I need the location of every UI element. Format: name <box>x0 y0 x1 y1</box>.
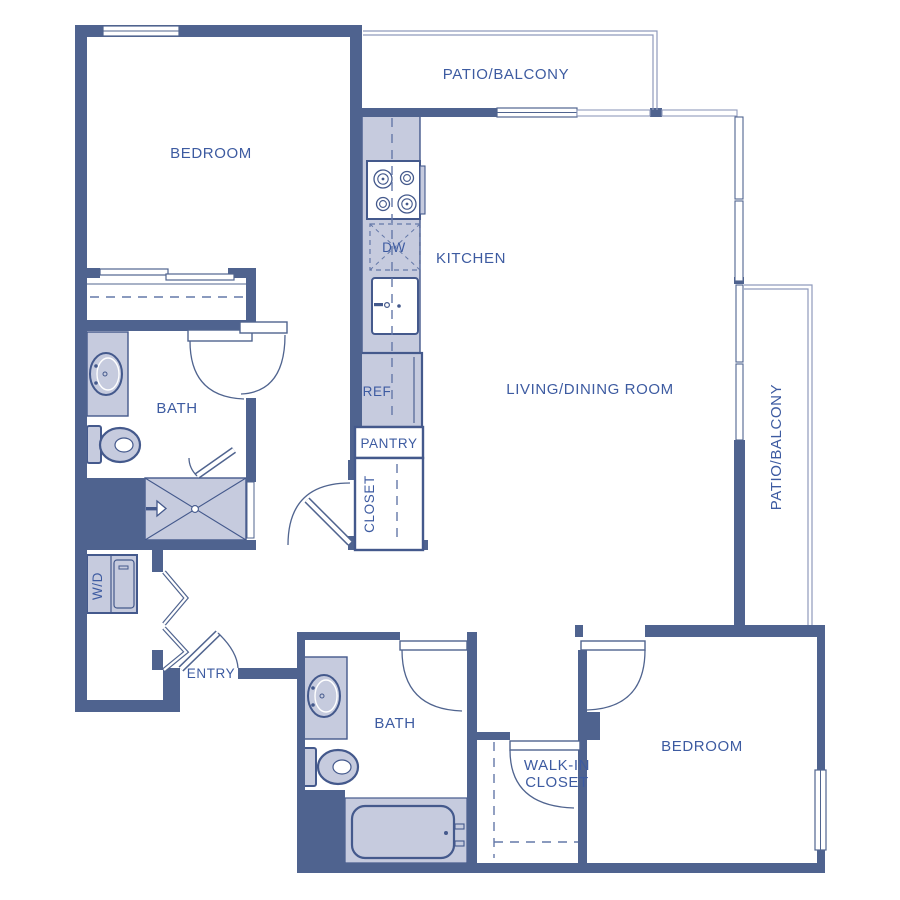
floor-plan-drawing: BEDROOM PATIO/BALCONY KITCHEN LIVING/DIN… <box>0 0 900 900</box>
floor-plan: BEDROOM PATIO/BALCONY KITCHEN LIVING/DIN… <box>0 0 900 900</box>
bath-bottom-vanity <box>302 657 347 739</box>
shower <box>145 478 246 540</box>
kitchen-top-window <box>497 108 577 117</box>
shower-glass-panel <box>247 482 254 538</box>
tub-faucet <box>444 831 448 835</box>
refrigerator-label: REF <box>363 384 392 399</box>
patio-right-label: PATIO/BALCONY <box>768 384 785 510</box>
patio-rail-top-right <box>662 110 737 116</box>
living-room-window-wall <box>735 117 743 440</box>
shower-drain <box>192 506 199 513</box>
pantry-label: PANTRY <box>360 436 417 451</box>
bath-bottom-label: BATH <box>374 715 415 732</box>
stove <box>367 161 425 219</box>
bedroom-top-label: BEDROOM <box>170 145 252 162</box>
kitchen-sink <box>372 278 418 334</box>
walk-in-closet-label-line2: CLOSET <box>525 774 589 791</box>
patio-rail-top <box>577 110 650 116</box>
walk-in-closet-label-line1: WALK-IN <box>524 757 590 774</box>
washer-dryer-label: W/D <box>90 572 105 600</box>
bath-top-toilet <box>87 426 140 463</box>
bedroom-bottom-window <box>815 770 826 850</box>
patio-top-label: PATIO/BALCONY <box>443 66 569 83</box>
bath-top-vanity <box>87 332 128 416</box>
entry-label: ENTRY <box>187 666 236 681</box>
bath-bottom-toilet <box>302 748 358 786</box>
bath-top-label: BATH <box>156 400 197 417</box>
bathtub <box>345 798 467 863</box>
dishwasher-label: DW <box>382 240 406 255</box>
bedroom-top-window <box>103 26 179 36</box>
kitchen-label: KITCHEN <box>436 250 506 267</box>
bedroom-bottom-label: BEDROOM <box>661 738 743 755</box>
hall-closet-label: CLOSET <box>362 475 377 533</box>
living-dining-label: LIVING/DINING ROOM <box>506 381 673 398</box>
